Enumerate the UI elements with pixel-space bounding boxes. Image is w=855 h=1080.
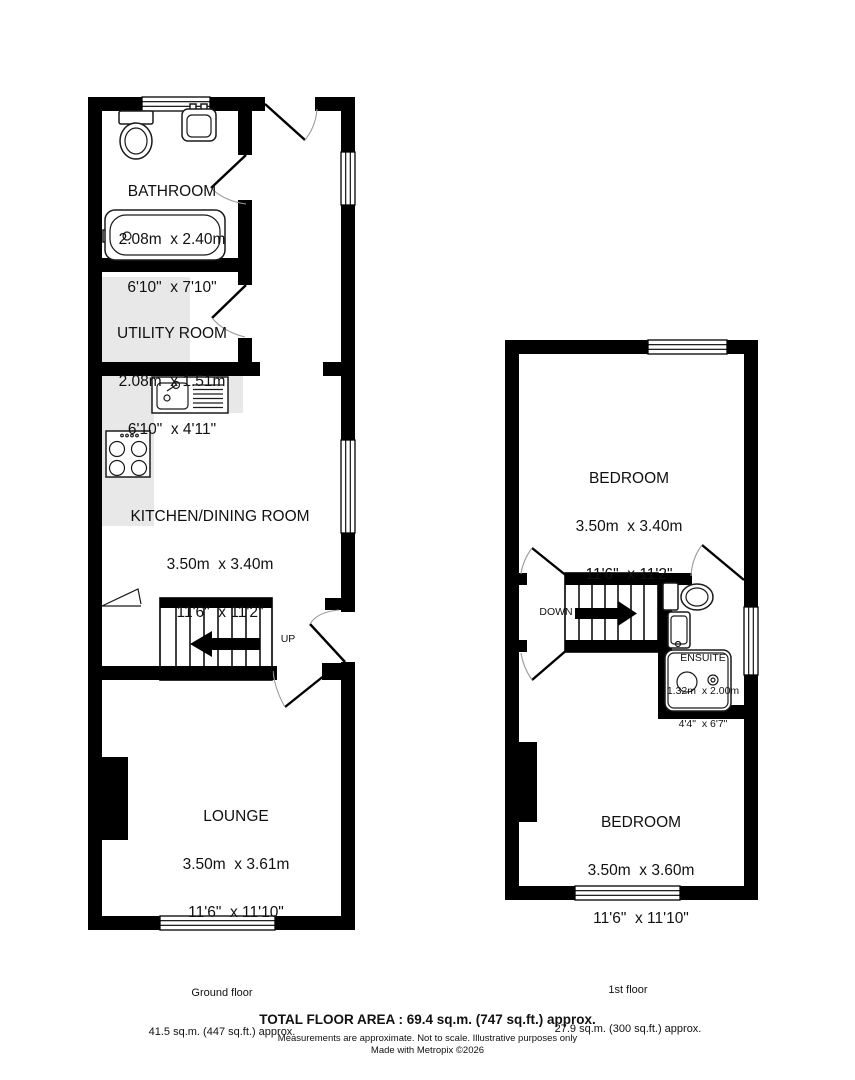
room-size-imperial: 11'6" x 11'2"	[130, 605, 309, 621]
floorplan-canvas: BATHROOM 2.08m x 2.40m 6'10" x 7'10" UTI…	[0, 0, 855, 1080]
wall	[88, 916, 160, 930]
wall	[565, 640, 658, 652]
door-arc	[521, 653, 532, 680]
wall	[519, 640, 527, 652]
lounge-door	[273, 671, 325, 707]
door-arc	[691, 545, 702, 576]
window	[648, 340, 727, 354]
stairs-down-label: DOWN	[539, 607, 572, 618]
room-size-imperial: 11'6" x 11'10"	[588, 911, 695, 927]
door-leaf	[285, 675, 325, 707]
wall	[744, 340, 758, 607]
wall	[238, 338, 252, 362]
wall	[505, 886, 575, 900]
room-size-metric: 2.08m x 1.51m	[117, 374, 227, 390]
room-name: KITCHEN/DINING ROOM	[130, 509, 309, 525]
room-size-metric: 2.08m x 2.40m	[119, 232, 226, 248]
door-leaf	[532, 548, 568, 577]
wall	[88, 97, 142, 111]
door-leaf	[265, 104, 305, 140]
room-label-bathroom: BATHROOM 2.08m x 2.40m 6'10" x 7'10"	[119, 152, 226, 312]
wall	[238, 272, 252, 285]
door-leaf	[310, 624, 345, 662]
room-name: LOUNGE	[183, 809, 290, 825]
room-size-imperial: 11'6" x 11'2"	[576, 567, 683, 583]
wall	[341, 662, 355, 916]
room-name: ENSUITE	[667, 653, 739, 664]
room-label-ensuite: ENSUITE 1.32m x 2.00m 4'4" x 6'7"	[667, 631, 739, 741]
room-name: BEDROOM	[576, 471, 683, 487]
wall	[210, 97, 265, 111]
floor-name: 1st floor	[555, 984, 702, 997]
ensuite-door	[691, 545, 744, 580]
room-label-utility: UTILITY ROOM 2.08m x 1.51m 6'10" x 4'11"	[117, 294, 227, 454]
room-label-bedroom-2: BEDROOM 3.50m x 3.60m 11'6" x 11'10"	[588, 783, 695, 943]
room-label-kitchen: KITCHEN/DINING ROOM 3.50m x 3.40m 11'6" …	[130, 477, 309, 637]
wall	[325, 598, 341, 610]
room-size-metric: 1.32m x 2.00m	[667, 686, 739, 697]
wall	[341, 97, 355, 152]
wall	[322, 663, 341, 680]
wall	[505, 340, 519, 900]
room-size-imperial: 11'6" x 11'10"	[183, 905, 290, 921]
wall	[160, 666, 272, 680]
room-name: BEDROOM	[588, 815, 695, 831]
window	[341, 440, 355, 533]
wall	[341, 533, 355, 612]
door-arc	[521, 548, 532, 574]
chimney-breast	[519, 742, 537, 822]
door-leaf	[702, 545, 744, 580]
window	[341, 152, 355, 205]
room-size-metric: 3.50m x 3.61m	[183, 857, 290, 873]
room-size-metric: 3.50m x 3.60m	[588, 863, 695, 879]
room-size-imperial: 6'10" x 4'11"	[117, 422, 227, 438]
wall	[238, 200, 252, 258]
credit-text: Made with Metropix ©2026	[0, 1045, 855, 1056]
bedroom-door-bottom	[521, 649, 568, 680]
wall	[88, 97, 102, 930]
chimney-breast	[102, 757, 128, 840]
room-name: BATHROOM	[119, 184, 226, 200]
total-floor-area: TOTAL FLOOR AREA : 69.4 sq.m. (747 sq.ft…	[0, 1012, 855, 1027]
kitchen-door	[310, 610, 345, 662]
door-arc	[310, 610, 339, 624]
front-door	[265, 104, 317, 140]
window	[744, 607, 758, 675]
wall	[519, 573, 527, 585]
floor-name: Ground floor	[149, 987, 296, 1000]
basin-icon	[182, 104, 216, 141]
bedroom-door-top	[521, 548, 568, 577]
room-size-metric: 3.50m x 3.40m	[576, 519, 683, 535]
room-name: UTILITY ROOM	[117, 326, 227, 342]
disclaimer-text: Measurements are approximate. Not to sca…	[0, 1033, 855, 1044]
wall	[341, 205, 355, 440]
stairs-up-label: UP	[281, 634, 296, 645]
door-arc	[305, 109, 317, 140]
wall	[505, 340, 648, 354]
wall	[323, 362, 341, 376]
room-label-bedroom-1: BEDROOM 3.50m x 3.40m 11'6" x 11'2"	[576, 439, 683, 599]
door-leaf	[532, 649, 568, 680]
room-label-lounge: LOUNGE 3.50m x 3.61m 11'6" x 11'10"	[183, 777, 290, 937]
room-size-metric: 3.50m x 3.40m	[130, 557, 309, 573]
wall	[238, 111, 252, 155]
down-arrow-icon	[575, 601, 637, 626]
room-size-imperial: 4'4" x 6'7"	[667, 719, 739, 730]
